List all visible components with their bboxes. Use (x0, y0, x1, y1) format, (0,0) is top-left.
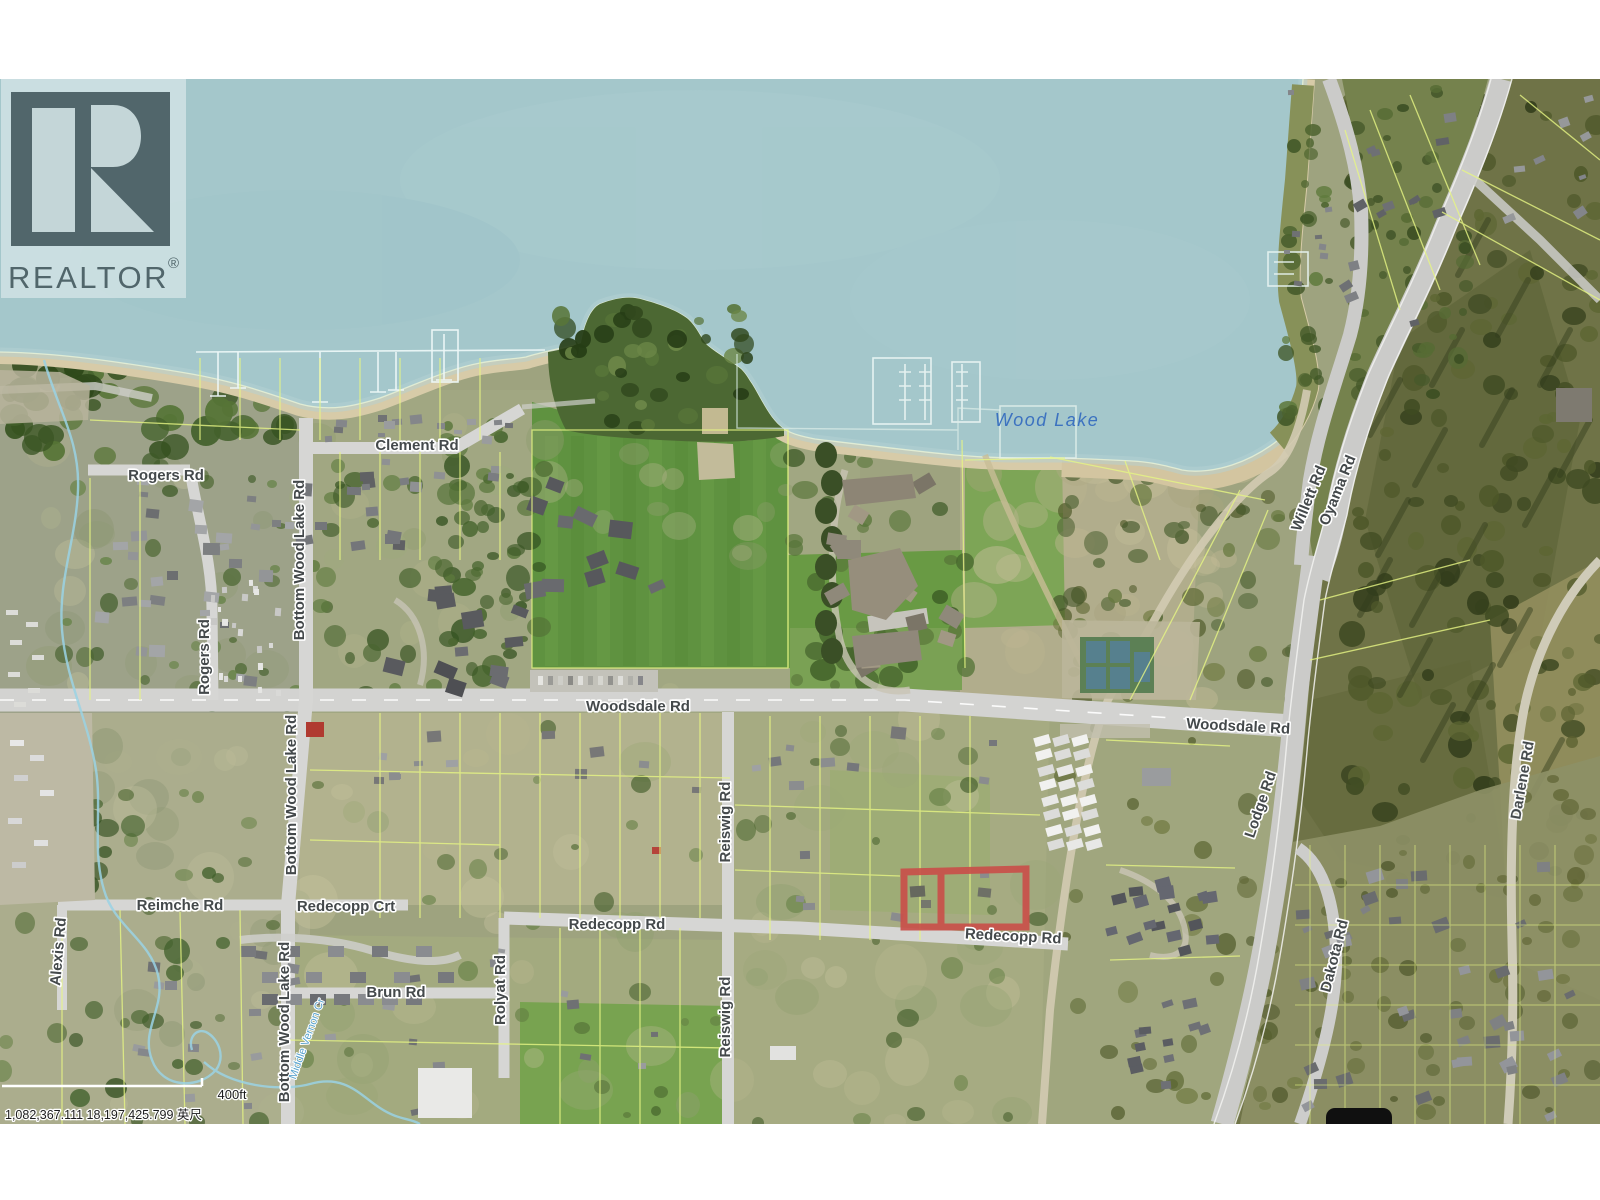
svg-text:®: ® (168, 255, 179, 272)
svg-text:Wood Lake: Wood Lake (995, 410, 1100, 430)
svg-text:Reiswig Rd: Reiswig Rd (717, 977, 734, 1058)
svg-text:Reimche Rd: Reimche Rd (137, 897, 224, 914)
svg-text:Bottom Wood Lake Rd: Bottom Wood Lake Rd (283, 715, 300, 876)
svg-text:Redecopp Rd: Redecopp Rd (569, 916, 666, 933)
svg-text:Rolyat Rd: Rolyat Rd (492, 955, 509, 1025)
svg-text:Brun Rd: Brun Rd (366, 984, 425, 1001)
svg-text:Rogers Rd: Rogers Rd (196, 619, 213, 695)
svg-text:Rogers Rd: Rogers Rd (128, 467, 204, 484)
svg-text:REALTOR: REALTOR (8, 260, 169, 295)
svg-text:Reiswig Rd: Reiswig Rd (717, 782, 734, 863)
svg-text:Redecopp Crt: Redecopp Crt (297, 898, 395, 915)
svg-text:Clement Rd: Clement Rd (375, 437, 458, 454)
svg-text:Bottom Wood Lake Rd: Bottom Wood Lake Rd (291, 480, 308, 641)
svg-text:400ft: 400ft (218, 1087, 247, 1102)
svg-text:Woodsdale Rd: Woodsdale Rd (586, 698, 690, 715)
svg-text:1,082,367.111 18,197,425.799 英: 1,082,367.111 18,197,425.799 英尺 (5, 1108, 202, 1122)
